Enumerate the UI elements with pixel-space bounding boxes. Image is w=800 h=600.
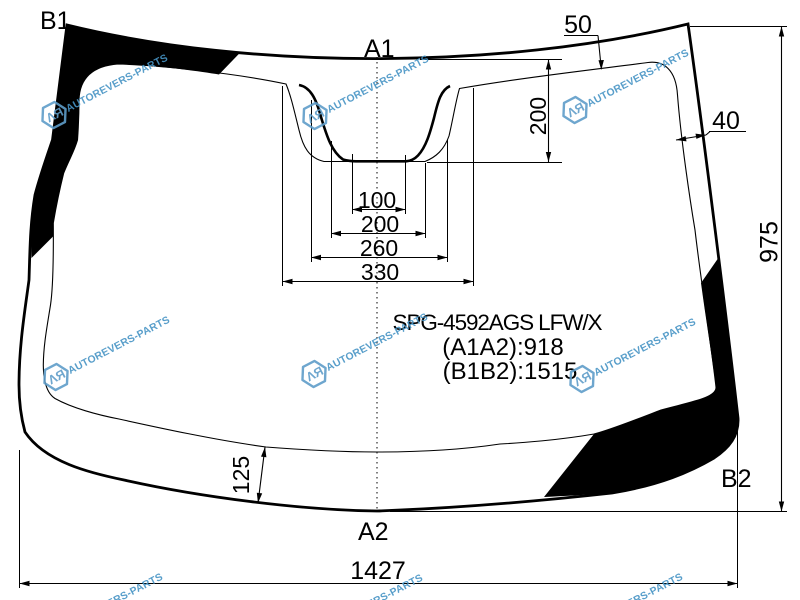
svg-text:A1: A1: [364, 35, 395, 63]
svg-text:40: 40: [712, 107, 740, 135]
svg-text:B2: B2: [721, 465, 752, 493]
svg-text:125: 125: [228, 456, 254, 494]
svg-text:330: 330: [361, 259, 399, 285]
svg-text:(A1A2):918: (A1A2):918: [442, 334, 563, 361]
svg-text:1427: 1427: [350, 557, 406, 585]
svg-text:200: 200: [525, 97, 551, 135]
svg-text:260: 260: [360, 235, 398, 261]
svg-text:A2: A2: [358, 518, 389, 546]
svg-text:B1: B1: [40, 7, 71, 35]
svg-text:(B1B2):1515: (B1B2):1515: [443, 358, 578, 385]
svg-text:50: 50: [564, 11, 592, 39]
svg-text:100: 100: [358, 187, 396, 213]
svg-text:975: 975: [756, 221, 784, 263]
svg-text:200: 200: [361, 211, 399, 237]
